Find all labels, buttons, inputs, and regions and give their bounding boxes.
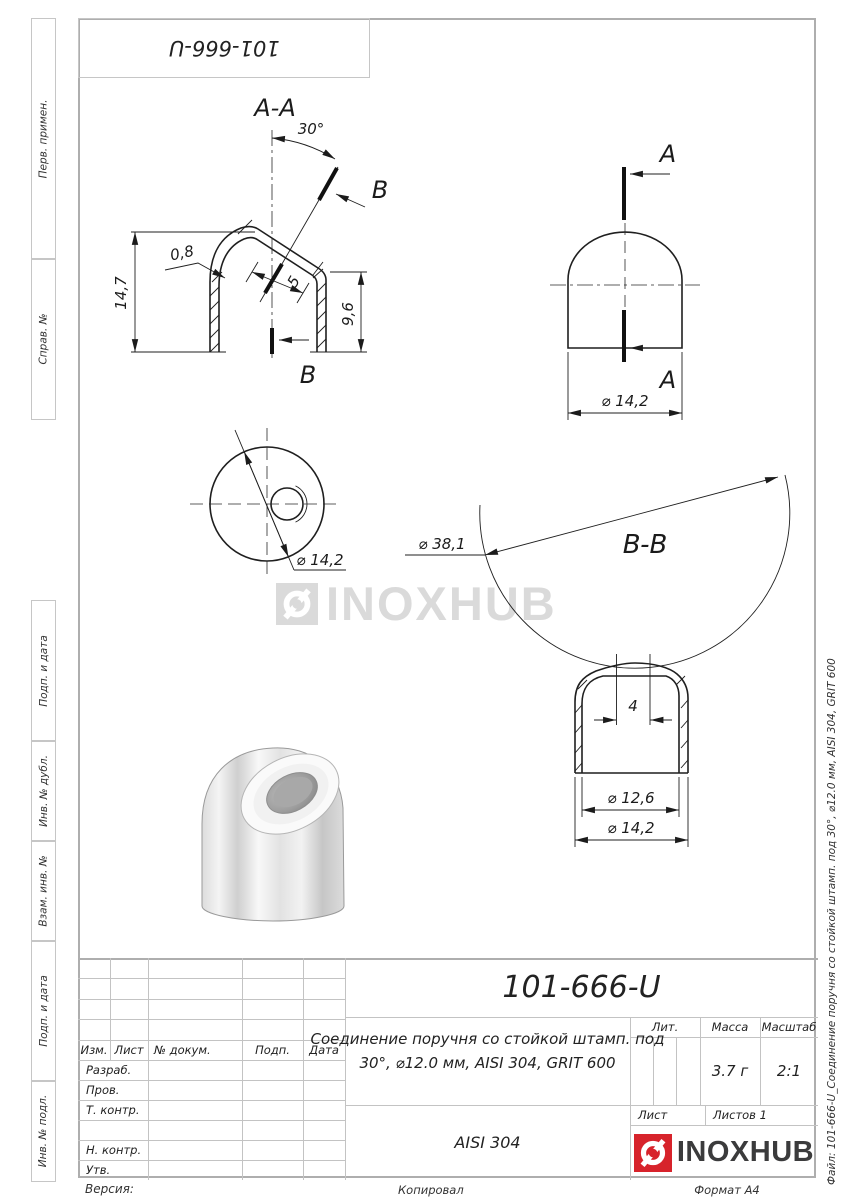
scale-value: 2:1 [760,1037,818,1105]
col-header-dokum: № докум. [154,1040,242,1060]
brand-logo: INOXHUB [630,1125,818,1180]
sig-row-empty [86,1120,166,1140]
side-box-inv-dubl: Инв. № дубл. [31,740,56,842]
dim-dia-38-1: ⌀ 38,1 [418,535,465,553]
dim-angle-30: 30° [298,120,325,138]
dim-height-9-6: 9,6 [339,302,357,326]
col-header-izm: Изм. [78,1040,110,1060]
view-section-a-a: A-A B B [95,86,415,398]
side-box-sprav-no: Справ. № [31,258,56,420]
col-header-podp: Подп. [242,1040,303,1060]
scale-label: Масштаб [760,1017,818,1037]
grid-line [242,958,243,1180]
sig-row-utv: Утв. [86,1160,166,1180]
grid-line [78,978,345,979]
cut-label-b-top: B [372,176,388,204]
dim-dia-12-6: ⌀ 12,6 [607,789,654,807]
side-label: Подп. и дата [38,635,50,707]
cut-label-b-bottom: B [300,361,316,389]
col-header-list: Лист [110,1040,148,1060]
stamp-material: AISI 304 [345,1105,630,1180]
sig-row-razrab: Разраб. [86,1060,166,1080]
cutting-plane-b: B B [260,167,388,389]
side-label: Подп. и дата [38,975,50,1047]
col-header-data: Дата [303,1040,345,1060]
side-label: Инв. № дубл. [38,755,50,827]
cut-label-a-bottom: A [658,366,676,394]
cup-hatching [575,676,688,771]
sig-row-nkontr: Н. контр. [86,1140,166,1160]
grid-line [676,1037,677,1105]
sheet-label: Лист [638,1105,703,1125]
corner-part-number-box: 101-666-U [78,18,370,78]
side-label: Инв. № подл. [38,1095,50,1167]
lit-label: Лит. [630,1017,700,1037]
grid-line [78,1019,345,1020]
view-section-b-b: B-B ⌀ 38,1 4 ⌀ 12,6 [398,433,820,853]
cap-hatching [210,269,326,352]
side-box-inv-podl: Инв. № подл. [31,1080,56,1182]
dim-dia-14-2-bb: ⌀ 14,2 [607,819,654,837]
grid-line [78,999,345,1000]
format-label: Формат А4 [687,1183,767,1197]
sig-row-tkontr: Т. контр. [86,1100,166,1120]
stamp-title-line2: 30°, ⌀12.0 мм, AISI 304, GRIT 600 [345,1052,630,1074]
side-box-podp-data-1: Подп. и дата [31,600,56,742]
brand-name: INOXHUB [677,1136,814,1169]
section-bb-title: B-B [623,530,668,560]
dim-dia-14-2-view-a: ⌀ 14,2 [601,392,648,410]
copied-label: Копировал [398,1183,464,1197]
part-3d-render [188,738,358,928]
stamp-title-line1: Соединение поручня со стойкой штамп. под [345,1028,630,1050]
corner-part-number: 101-666-U [169,36,280,60]
view-a-dome: A A ⌀ 14,2 [538,128,750,424]
file-path-label: Файл: 101-666-U_Соединение поручня со ст… [826,685,840,1185]
side-label: Перв. примен. [38,100,50,179]
dim-height-14-7: 14,7 [112,276,130,310]
side-label: Взам. инв. № [38,855,50,926]
side-box-perv-primen: Перв. примен. [31,18,56,260]
inoxhub-logo-icon [634,1134,672,1172]
stamp-part-number: 101-666-U [345,958,818,1017]
sig-row-prov: Пров. [86,1080,166,1100]
view-bottom-circle: ⌀ 14,2 [166,416,396,594]
dim-dia-14-2-bottom: ⌀ 14,2 [296,551,343,569]
side-label: Справ. № [38,313,50,364]
tube-arc [480,475,790,668]
version-label: Версия: [85,1182,134,1196]
cut-label-a-top: A [658,140,676,168]
sheets-label: Листов 1 [713,1105,816,1125]
mass-label: Масса [700,1017,760,1037]
dim-thickness-0-8: 0,8 [168,242,195,265]
mass-value: 3.7 г [700,1037,760,1105]
grid-line [705,1105,706,1125]
dim-width-4: 4 [628,697,638,715]
section-aa-title: A-A [252,94,296,122]
dim-depth-5: 5 [283,273,303,290]
drawing-sheet: INOXHUB 101-666-U Перв. примен. Справ. №… [0,0,848,1200]
side-box-vzam-inv: Взам. инв. № [31,840,56,942]
grid-line [303,958,304,1180]
side-box-podp-data-2: Подп. и дата [31,940,56,1082]
